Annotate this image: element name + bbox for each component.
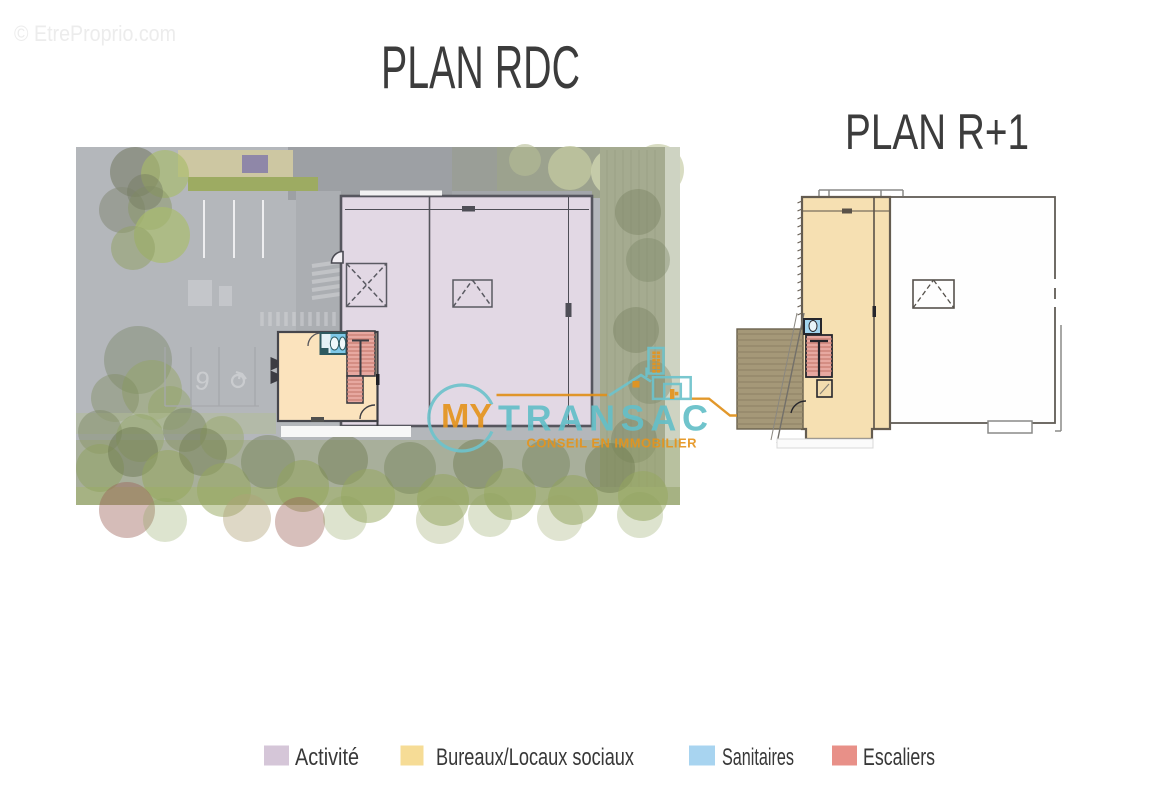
svg-text:Sanitaires: Sanitaires — [722, 744, 794, 771]
svg-text:CONSEIL EN IMMOBILIER: CONSEIL EN IMMOBILIER — [527, 436, 698, 451]
svg-text:Activité: Activité — [295, 744, 359, 771]
svg-text:PLAN RDC: PLAN RDC — [381, 34, 580, 101]
svg-text:Bureaux/Locaux sociaux: Bureaux/Locaux sociaux — [436, 744, 634, 771]
svg-text:Escaliers: Escaliers — [863, 744, 935, 771]
svg-text:© EtreProprio.com: © EtreProprio.com — [14, 21, 176, 46]
svg-text:MY: MY — [441, 398, 492, 436]
svg-text:PLAN R+1: PLAN R+1 — [845, 104, 1029, 160]
